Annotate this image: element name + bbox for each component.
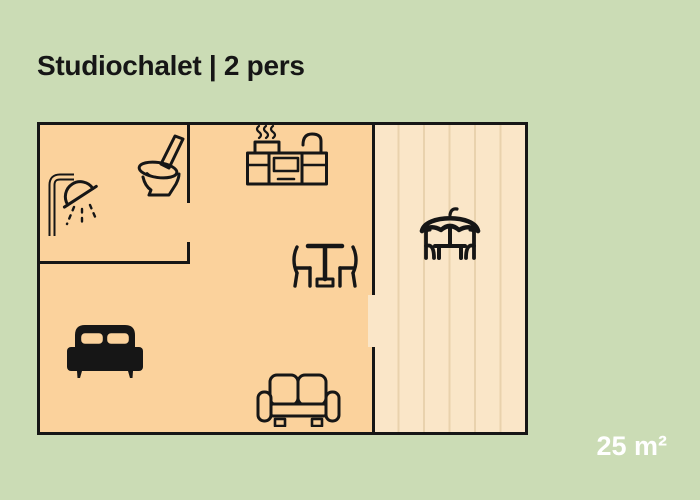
wall-bathroom-horizontal bbox=[40, 261, 190, 264]
parasol-table-icon bbox=[417, 205, 483, 260]
dining-table-icon bbox=[283, 239, 367, 292]
floorplan-page: { "title": "Studiochalet | 2 pers", "are… bbox=[0, 0, 700, 500]
terrace-door-opening bbox=[368, 295, 375, 347]
wall-terrace-lower bbox=[372, 347, 375, 432]
wall-terrace-upper bbox=[372, 125, 375, 295]
page-title: Studiochalet | 2 pers bbox=[37, 50, 305, 82]
floorplan bbox=[37, 122, 528, 435]
toilet-icon bbox=[136, 133, 194, 197]
sofa-icon bbox=[255, 372, 342, 427]
area-label: 25 m² bbox=[596, 431, 667, 462]
terrace-area bbox=[374, 125, 525, 432]
bed-icon bbox=[67, 325, 143, 378]
shower-icon bbox=[45, 170, 100, 240]
kitchen-icon bbox=[245, 125, 329, 187]
